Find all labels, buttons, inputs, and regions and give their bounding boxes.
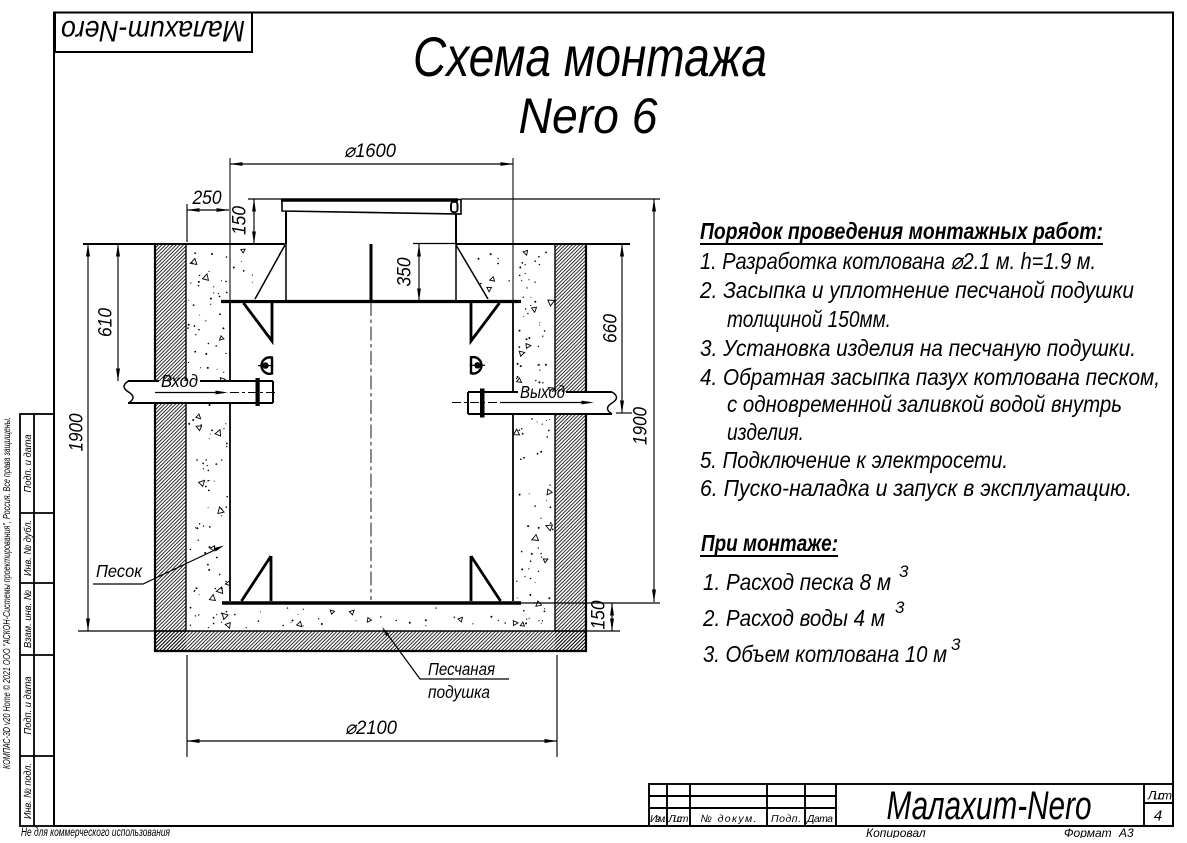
svg-text:Не для коммерческого использов: Не для коммерческого использования [21, 827, 170, 838]
svg-text:3. Установка изделия на песчан: 3. Установка изделия на песчаную подушки… [700, 335, 1136, 361]
svg-text:изделия.: изделия. [727, 419, 804, 445]
svg-text:Дата: Дата [806, 813, 833, 825]
svg-text:Nero 6: Nero 6 [519, 88, 658, 144]
svg-text:При монтаже:: При монтаже: [701, 530, 838, 556]
svg-text:1900: 1900 [631, 407, 652, 445]
svg-text:5. Подключение к электросети.: 5. Подключение к электросети. [700, 447, 1008, 473]
svg-text:Вход: Вход [161, 371, 198, 391]
svg-text:№ докум.: № докум. [701, 813, 757, 825]
svg-text:Подп. и дата: Подп. и дата [22, 676, 34, 734]
svg-text:3. Объем котлована 10 м: 3. Объем котлована 10 м [703, 641, 947, 667]
svg-text:4. Обратная засыпка пазух котл: 4. Обратная засыпка пазух котлована песк… [700, 364, 1160, 390]
svg-text:660: 660 [601, 314, 622, 343]
svg-text:Взам. инв. №: Взам. инв. № [22, 590, 34, 648]
svg-text:2. Засыпка и уплотнение песчан: 2. Засыпка и уплотнение песчаной подушки [699, 277, 1134, 303]
svg-text:3: 3 [899, 562, 909, 581]
svg-text:Выход: Выход [520, 382, 565, 402]
svg-text:1. Расход песка 8 м: 1. Расход песка 8 м [703, 569, 891, 595]
svg-text:3: 3 [895, 598, 905, 617]
svg-text:6. Пуско-наладка и запуск в эк: 6. Пуско-наладка и запуск в эксплуатацию… [700, 475, 1132, 501]
svg-text:Инв. № подл.: Инв. № подл. [22, 763, 34, 819]
svg-text:4: 4 [1154, 808, 1162, 825]
svg-text:3: 3 [951, 635, 961, 654]
svg-text:Копировал: Копировал [866, 826, 926, 838]
svg-text:Схема монтажа: Схема монтажа [413, 25, 767, 88]
svg-text:Малахит-Nero: Малахит-Nero [887, 784, 1092, 828]
svg-text:Малахит-Nero: Малахит-Nero [61, 14, 245, 47]
svg-text:Песчаная: Песчаная [428, 659, 495, 679]
svg-text:Песок: Песок [96, 561, 143, 581]
svg-text:610: 610 [96, 308, 117, 337]
svg-text:Инв. № дубл.: Инв. № дубл. [22, 520, 34, 576]
svg-text:1900: 1900 [67, 413, 88, 451]
svg-text:Лист: Лист [1147, 789, 1172, 803]
svg-text:подушка: подушка [428, 682, 490, 702]
svg-text:с одновременной заливкой водой: с одновременной заливкой водой внутрь [727, 391, 1122, 417]
svg-text:1. Разработка котлована ⌀2.1 м: 1. Разработка котлована ⌀2.1 м. h=1.9 м. [700, 248, 1096, 274]
svg-text:Подп. и дата: Подп. и дата [22, 434, 34, 492]
svg-text:А3: А3 [1118, 826, 1134, 838]
svg-text:КОМПАС-3D v20 Home © 2021 ООО: КОМПАС-3D v20 Home © 2021 ООО "АСКОН-Сис… [1, 417, 13, 769]
svg-text:350: 350 [395, 257, 416, 286]
svg-text:150: 150 [230, 206, 251, 235]
svg-text:Лист: Лист [668, 813, 689, 825]
svg-text:2. Расход воды 4 м: 2. Расход воды 4 м [702, 605, 885, 631]
svg-text:250: 250 [192, 188, 222, 209]
svg-text:150: 150 [589, 600, 610, 629]
svg-text:Изм.: Изм. [650, 813, 666, 825]
svg-text:Формат: Формат [1064, 826, 1112, 838]
svg-text:⌀1600: ⌀1600 [344, 141, 396, 162]
svg-text:⌀2100: ⌀2100 [345, 718, 397, 739]
svg-text:Порядок проведения монтажных р: Порядок проведения монтажных работ: [700, 218, 1103, 244]
svg-text:Подп.: Подп. [771, 813, 801, 825]
svg-text:толщиной 150мм.: толщиной 150мм. [727, 306, 891, 332]
